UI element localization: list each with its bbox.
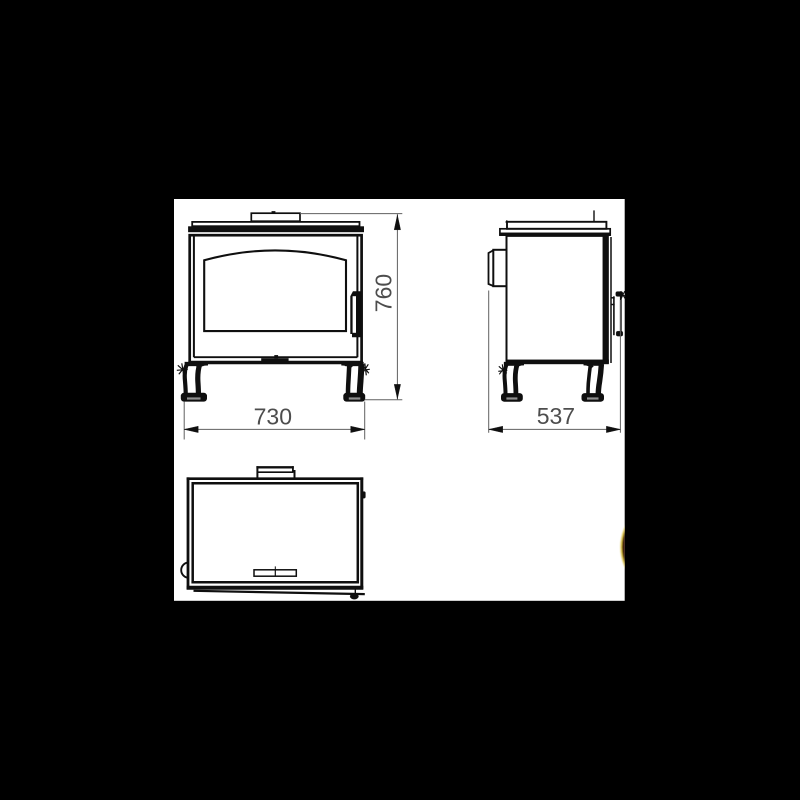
svg-text:760: 760: [371, 274, 397, 312]
svg-text:730: 730: [254, 404, 292, 430]
svg-text:537: 537: [537, 403, 575, 429]
